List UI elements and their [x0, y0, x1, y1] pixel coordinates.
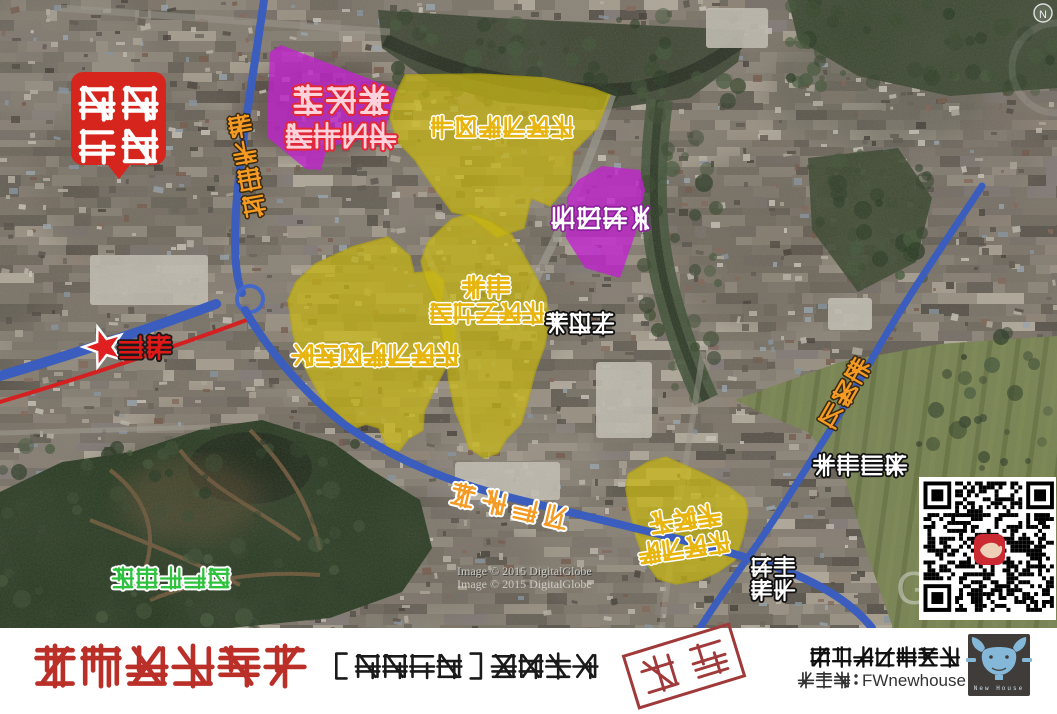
svg-text:N: N: [1039, 9, 1047, 21]
svg-text:Image © 2015 DigitalGlobe: Image © 2015 DigitalGlobe: [457, 564, 592, 578]
svg-text:New House: New House: [974, 685, 1024, 692]
svg-text:Image © 2015 DigitalGlobe: Image © 2015 DigitalGlobe: [457, 577, 592, 591]
svg-text:FWnewhouse: FWnewhouse: [862, 671, 966, 690]
